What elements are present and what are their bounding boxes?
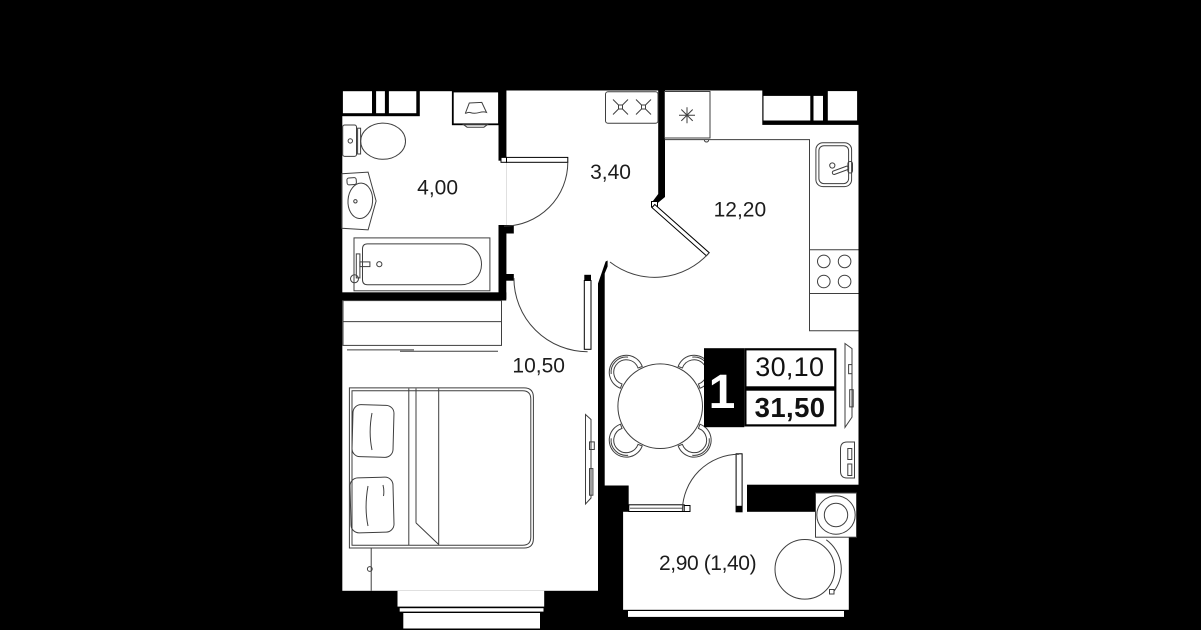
svg-text:10,50: 10,50 — [512, 355, 565, 378]
svg-text:1: 1 — [709, 366, 736, 419]
svg-text:4,00: 4,00 — [417, 177, 458, 200]
svg-text:31,50: 31,50 — [755, 392, 826, 423]
svg-text:12,20: 12,20 — [714, 199, 767, 222]
svg-text:3,40: 3,40 — [590, 161, 631, 184]
svg-text:2,90 (1,40): 2,90 (1,40) — [659, 552, 756, 575]
svg-text:30,10: 30,10 — [755, 352, 824, 382]
